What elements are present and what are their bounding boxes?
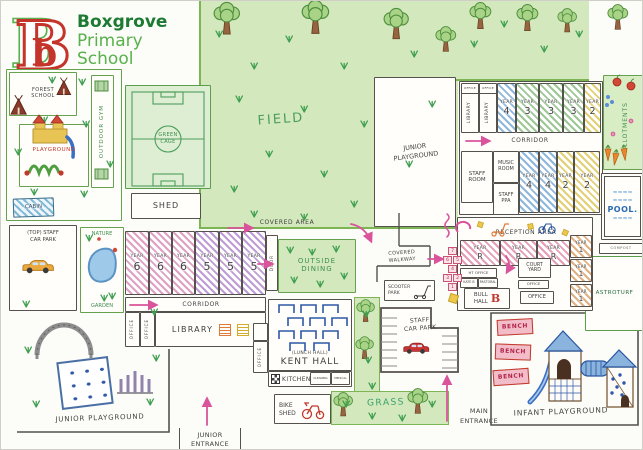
hopscotch-number: 1	[451, 285, 454, 290]
courtyard-label-2: YARD	[528, 268, 541, 273]
classroom-year-5: YEAR5	[242, 231, 266, 295]
office-strip-2-label: OFFICE	[145, 319, 149, 339]
astroturf-label: ASTROTURF	[594, 289, 636, 297]
allotments-label-wrap: ALLOTMENTS	[619, 91, 633, 163]
staff-car-park: STAFF CAR PARK	[379, 306, 461, 374]
room-number: 3	[548, 106, 554, 117]
library-room-1: OFFICE LIBRARY	[461, 83, 479, 133]
pastoral-office: PASTORAL	[478, 278, 498, 288]
grass-label: GRASS	[356, 397, 416, 409]
pool-wave: ≈≈≈≈	[612, 198, 632, 205]
room-number: 6	[180, 260, 187, 273]
nature-garden-label-1: NATURE	[81, 231, 123, 237]
top-staff-car-park: (TOP) STAFF CAR PARK	[9, 225, 77, 311]
lower-corridor-label: CORRIDOR	[166, 302, 236, 309]
room-label: YEAR	[474, 246, 487, 251]
music-room-label-2: ROOM	[498, 167, 514, 173]
room-number: 5	[204, 260, 211, 273]
nature-garden-label-2: GARDEN	[81, 303, 123, 309]
room-label: YEAR	[581, 174, 594, 179]
pastoral-label: PASTORAL	[480, 281, 496, 285]
office-strip-1: OFFICE	[125, 312, 140, 347]
classroom-year-3: YEAR3	[516, 83, 539, 133]
compost-label: COMPOST	[611, 247, 632, 251]
library-office-2: OFFICE	[480, 84, 496, 94]
bench-label: BENCH	[498, 373, 525, 382]
outside-dining: OUTSIDE DINING	[278, 239, 356, 293]
upper-corridor-label: CORRIDOR	[495, 138, 565, 145]
room-label: YEAR	[201, 254, 214, 259]
outdoor-gym-label: OUTDOOR GYM	[99, 105, 105, 158]
ht-office: HT OFFICE	[460, 268, 497, 278]
shed: SHED	[131, 193, 201, 219]
cabin-label: CABIN	[25, 204, 42, 211]
room-label: YEAR	[559, 174, 572, 179]
hopscotch-square: 1	[448, 283, 457, 291]
utility-room-1: CLEANING	[310, 372, 331, 385]
classroom-year-4: YEAR4	[539, 151, 557, 213]
pool-label: POOL.	[607, 206, 637, 215]
office-main: OFFICE	[520, 291, 554, 304]
room-label: YEAR	[545, 100, 558, 105]
bike-shed-label-2: SHED	[279, 410, 296, 418]
staff-ppa-room: STAFF PPA	[493, 183, 519, 215]
climbing-arch-icon	[37, 325, 91, 359]
pool-wave: ≈≈≈≈	[612, 216, 632, 223]
door-label: DOOR	[270, 255, 274, 271]
room-number: R	[477, 252, 483, 261]
infant-climbing-frame	[530, 331, 636, 407]
covered-area-label: COVERED AREA	[244, 220, 330, 227]
bull-hall: BULL HALL B	[464, 288, 510, 309]
utility-room-2: MEDICAL	[331, 372, 350, 385]
bike-shed: BIKE SHED	[274, 394, 331, 424]
courtyard: COURT YARD	[518, 258, 551, 278]
junior-playground-top: JUNIOR PLAYGROUND	[374, 77, 456, 227]
hopscotch-square: 3	[443, 274, 452, 282]
bull-hall-label-1: BULL	[474, 292, 488, 299]
checker-icon	[271, 374, 280, 384]
office-strip-1-label: OFFICE	[130, 319, 134, 339]
lower-library: LIBRARY	[155, 312, 266, 347]
hopscotch-square: 2	[453, 274, 462, 282]
outside-dining-label-2: DINING	[301, 266, 332, 274]
room-label: YEAR	[575, 289, 587, 294]
hopscotch-square: 5	[453, 256, 462, 264]
top-car-park-label-1: (TOP) STAFF	[10, 230, 76, 237]
junior-playground-bottom-label: JUNIOR PLAYGROUND	[41, 412, 159, 424]
playground-enclosure	[19, 124, 89, 187]
forest-school: FOREST SCHOOL	[9, 72, 77, 116]
green-cage-label-2: CAGE	[148, 139, 188, 146]
staff-ppa-label-2: PPA	[501, 199, 510, 205]
infant-playground-label: INFANT PLAYGROUND	[501, 406, 621, 419]
bookshelf-icon	[237, 324, 249, 336]
room-label: YEAR	[575, 264, 587, 269]
bench-label: BENCH	[500, 348, 526, 356]
hopscotch-number: 5	[456, 258, 459, 263]
room-label: YEAR	[521, 100, 534, 105]
lower-corridor: CORRIDOR	[125, 297, 266, 312]
classroom-year-6: YEAR6	[149, 231, 172, 295]
bull-hall-logo: B	[491, 292, 500, 305]
kitchen-label: KITCHEN	[282, 376, 311, 383]
room-label: YEAR	[523, 174, 536, 179]
room-number: 1	[579, 295, 583, 303]
kate-b-label: KATE B	[463, 281, 474, 285]
shed-label: SHED	[153, 202, 179, 211]
library-label-2: LIBRARY	[485, 102, 490, 123]
kent-hall-office: OFFICE	[253, 341, 268, 373]
bookshelf-icon	[219, 324, 231, 336]
classroom-year-3: YEAR3	[563, 83, 584, 133]
room-label: YEAR	[575, 240, 587, 245]
classroom-year-6: YEAR6	[125, 231, 149, 295]
compost-box: COMPOST	[599, 243, 643, 254]
room-label: YEAR	[224, 254, 237, 259]
room-label: YEAR	[154, 254, 167, 259]
hopscotch-number: 4	[451, 267, 454, 272]
covered-walkway-label: COVERED WALKWAY	[379, 248, 426, 265]
allotments-label: ALLOTMENTS	[623, 102, 630, 152]
room-number: 6	[157, 260, 164, 273]
scooter-park-label-1: SCOOTER	[388, 285, 410, 291]
room-number: 3	[524, 106, 530, 117]
office-small: OFFICE	[518, 280, 549, 289]
library-room-2: OFFICE LIBRARY	[479, 83, 497, 133]
classroom-year-5: YEAR5	[195, 231, 219, 295]
trim-trail-icon	[117, 371, 153, 393]
room-number: 4	[503, 106, 509, 117]
reception-area-label: RECEPTION AREA	[471, 230, 581, 237]
classroom-year-1: YEAR1	[570, 235, 592, 258]
room-number: 2	[562, 180, 568, 191]
hopscotch-number: 7	[451, 249, 454, 254]
room-number: 1	[579, 270, 583, 278]
office-main-label: OFFICE	[528, 295, 546, 301]
classroom-year-2: YEAR2	[557, 151, 574, 213]
room-label: YEAR	[567, 100, 580, 105]
junior-entrance: JUNIOR ENTRANCE	[179, 428, 241, 450]
room-number: R	[551, 252, 557, 261]
classroom-year-4: YEAR4	[497, 83, 516, 133]
staff-room: STAFF ROOM	[461, 151, 493, 203]
grass-strip-vertical	[354, 297, 380, 393]
lower-library-label: LIBRARY	[172, 325, 213, 334]
office-strip-2: OFFICE	[140, 312, 155, 347]
kent-hall-office-label: OFFICE	[258, 347, 262, 367]
green-cage-label: GREEN CAGE	[148, 132, 188, 145]
kent-hall: (LUNCH HALL) KENT HALL	[268, 299, 352, 371]
hopscotch-number: 2	[456, 276, 459, 281]
hopscotch-number: 6	[446, 258, 449, 263]
library-office-1: OFFICE	[462, 84, 478, 94]
bench: BENCH	[497, 318, 534, 336]
bench: BENCH	[495, 343, 532, 360]
room-label: YEAR	[586, 100, 599, 105]
junior-entrance-label-1: JUNIOR	[180, 431, 240, 440]
room-number: 2	[584, 180, 590, 191]
room-number: 3	[570, 106, 576, 117]
kate-b-office: KATE B	[460, 278, 478, 288]
pool: ≈≈≈≈ ≈≈≈≈ POOL. ≈≈≈≈	[601, 173, 643, 240]
bench: BENCH	[492, 368, 529, 386]
classroom-year-6: YEAR6	[172, 231, 195, 295]
room-label: YEAR	[500, 100, 513, 105]
bench-label: BENCH	[502, 323, 528, 331]
room-label: YEAR	[177, 254, 190, 259]
lunch-hall-label: (LUNCH HALL)	[269, 351, 351, 356]
library-label-1: LIBRARY	[467, 102, 472, 123]
room-number: 2	[589, 106, 595, 117]
room-label: YEAR	[542, 174, 555, 179]
room-number: 5	[227, 260, 234, 273]
room-number: 4	[545, 180, 551, 191]
room-number: 5	[251, 260, 258, 273]
pool-wave: ≈≈≈≈	[612, 190, 632, 197]
ht-office-label: HT OFFICE	[469, 271, 489, 275]
classroom-year-4: YEAR4	[519, 151, 539, 213]
junior-entrance-label-2: ENTRANCE	[180, 440, 240, 449]
classroom-year-r: YEARR	[460, 240, 500, 266]
music-room: MUSIC ROOM	[493, 151, 519, 183]
room-number: 6	[134, 260, 141, 273]
utility-room-1-label: CLEANING	[313, 377, 327, 380]
top-car-park-label-2: CAR PARK	[10, 237, 76, 244]
hopscotch-square: 6	[443, 256, 452, 264]
room-label: YEAR	[131, 254, 144, 259]
school-site-map: FIELD B B b Boxgrove Primary School FORE…	[0, 0, 643, 450]
scooter-park: SCOOTER PARK	[384, 280, 435, 301]
small-room	[253, 323, 268, 341]
office-small-label: OFFICE	[527, 282, 541, 286]
utility-room-2-label: MEDICAL	[334, 377, 347, 380]
climbing-square	[56, 356, 113, 410]
forest-school-label-2: SCHOOL	[31, 94, 54, 100]
main-entrance-label-2: ENTRANCE	[451, 417, 507, 427]
classroom-year-2: YEAR2	[584, 83, 601, 133]
astroturf: ASTROTURF	[585, 256, 643, 331]
bike-shed-label-1: BIKE	[279, 402, 296, 410]
room-number: 4	[526, 180, 532, 191]
main-entrance-label-1: MAIN	[451, 407, 507, 417]
kent-hall-label: KENT HALL	[269, 357, 351, 367]
hopscotch-number: 3	[446, 276, 449, 281]
classroom-year-1: YEAR1	[570, 284, 592, 307]
classroom-year-1: YEAR1	[570, 259, 592, 282]
logo-title: Boxgrove	[77, 13, 197, 33]
hopscotch-square: 7	[448, 247, 457, 255]
logo-subtitle-2: School	[77, 50, 197, 70]
cabin: CABIN	[13, 197, 55, 217]
staff-room-label-2: ROOM	[468, 177, 485, 183]
field-area-top-right	[456, 1, 589, 81]
classroom-year-2: YEAR2	[574, 151, 600, 213]
door-strip: DOOR	[266, 235, 278, 291]
room-label: YEAR	[512, 246, 525, 251]
scooter-park-label-2: PARK	[388, 291, 410, 297]
classroom-year-3: YEAR3	[539, 83, 563, 133]
room-label: YEAR	[248, 254, 261, 259]
outdoor-gym: OUTDOOR GYM	[91, 75, 114, 188]
room-label: YEAR	[547, 246, 560, 251]
playground-label: PLAYGROUND	[24, 147, 84, 153]
classroom-year-5: YEAR5	[219, 231, 242, 295]
room-number: 1	[579, 246, 583, 254]
bull-hall-label-2: HALL	[474, 299, 488, 306]
hopscotch-square: 4	[448, 265, 457, 273]
main-entrance-label: MAIN ENTRANCE	[451, 407, 507, 427]
